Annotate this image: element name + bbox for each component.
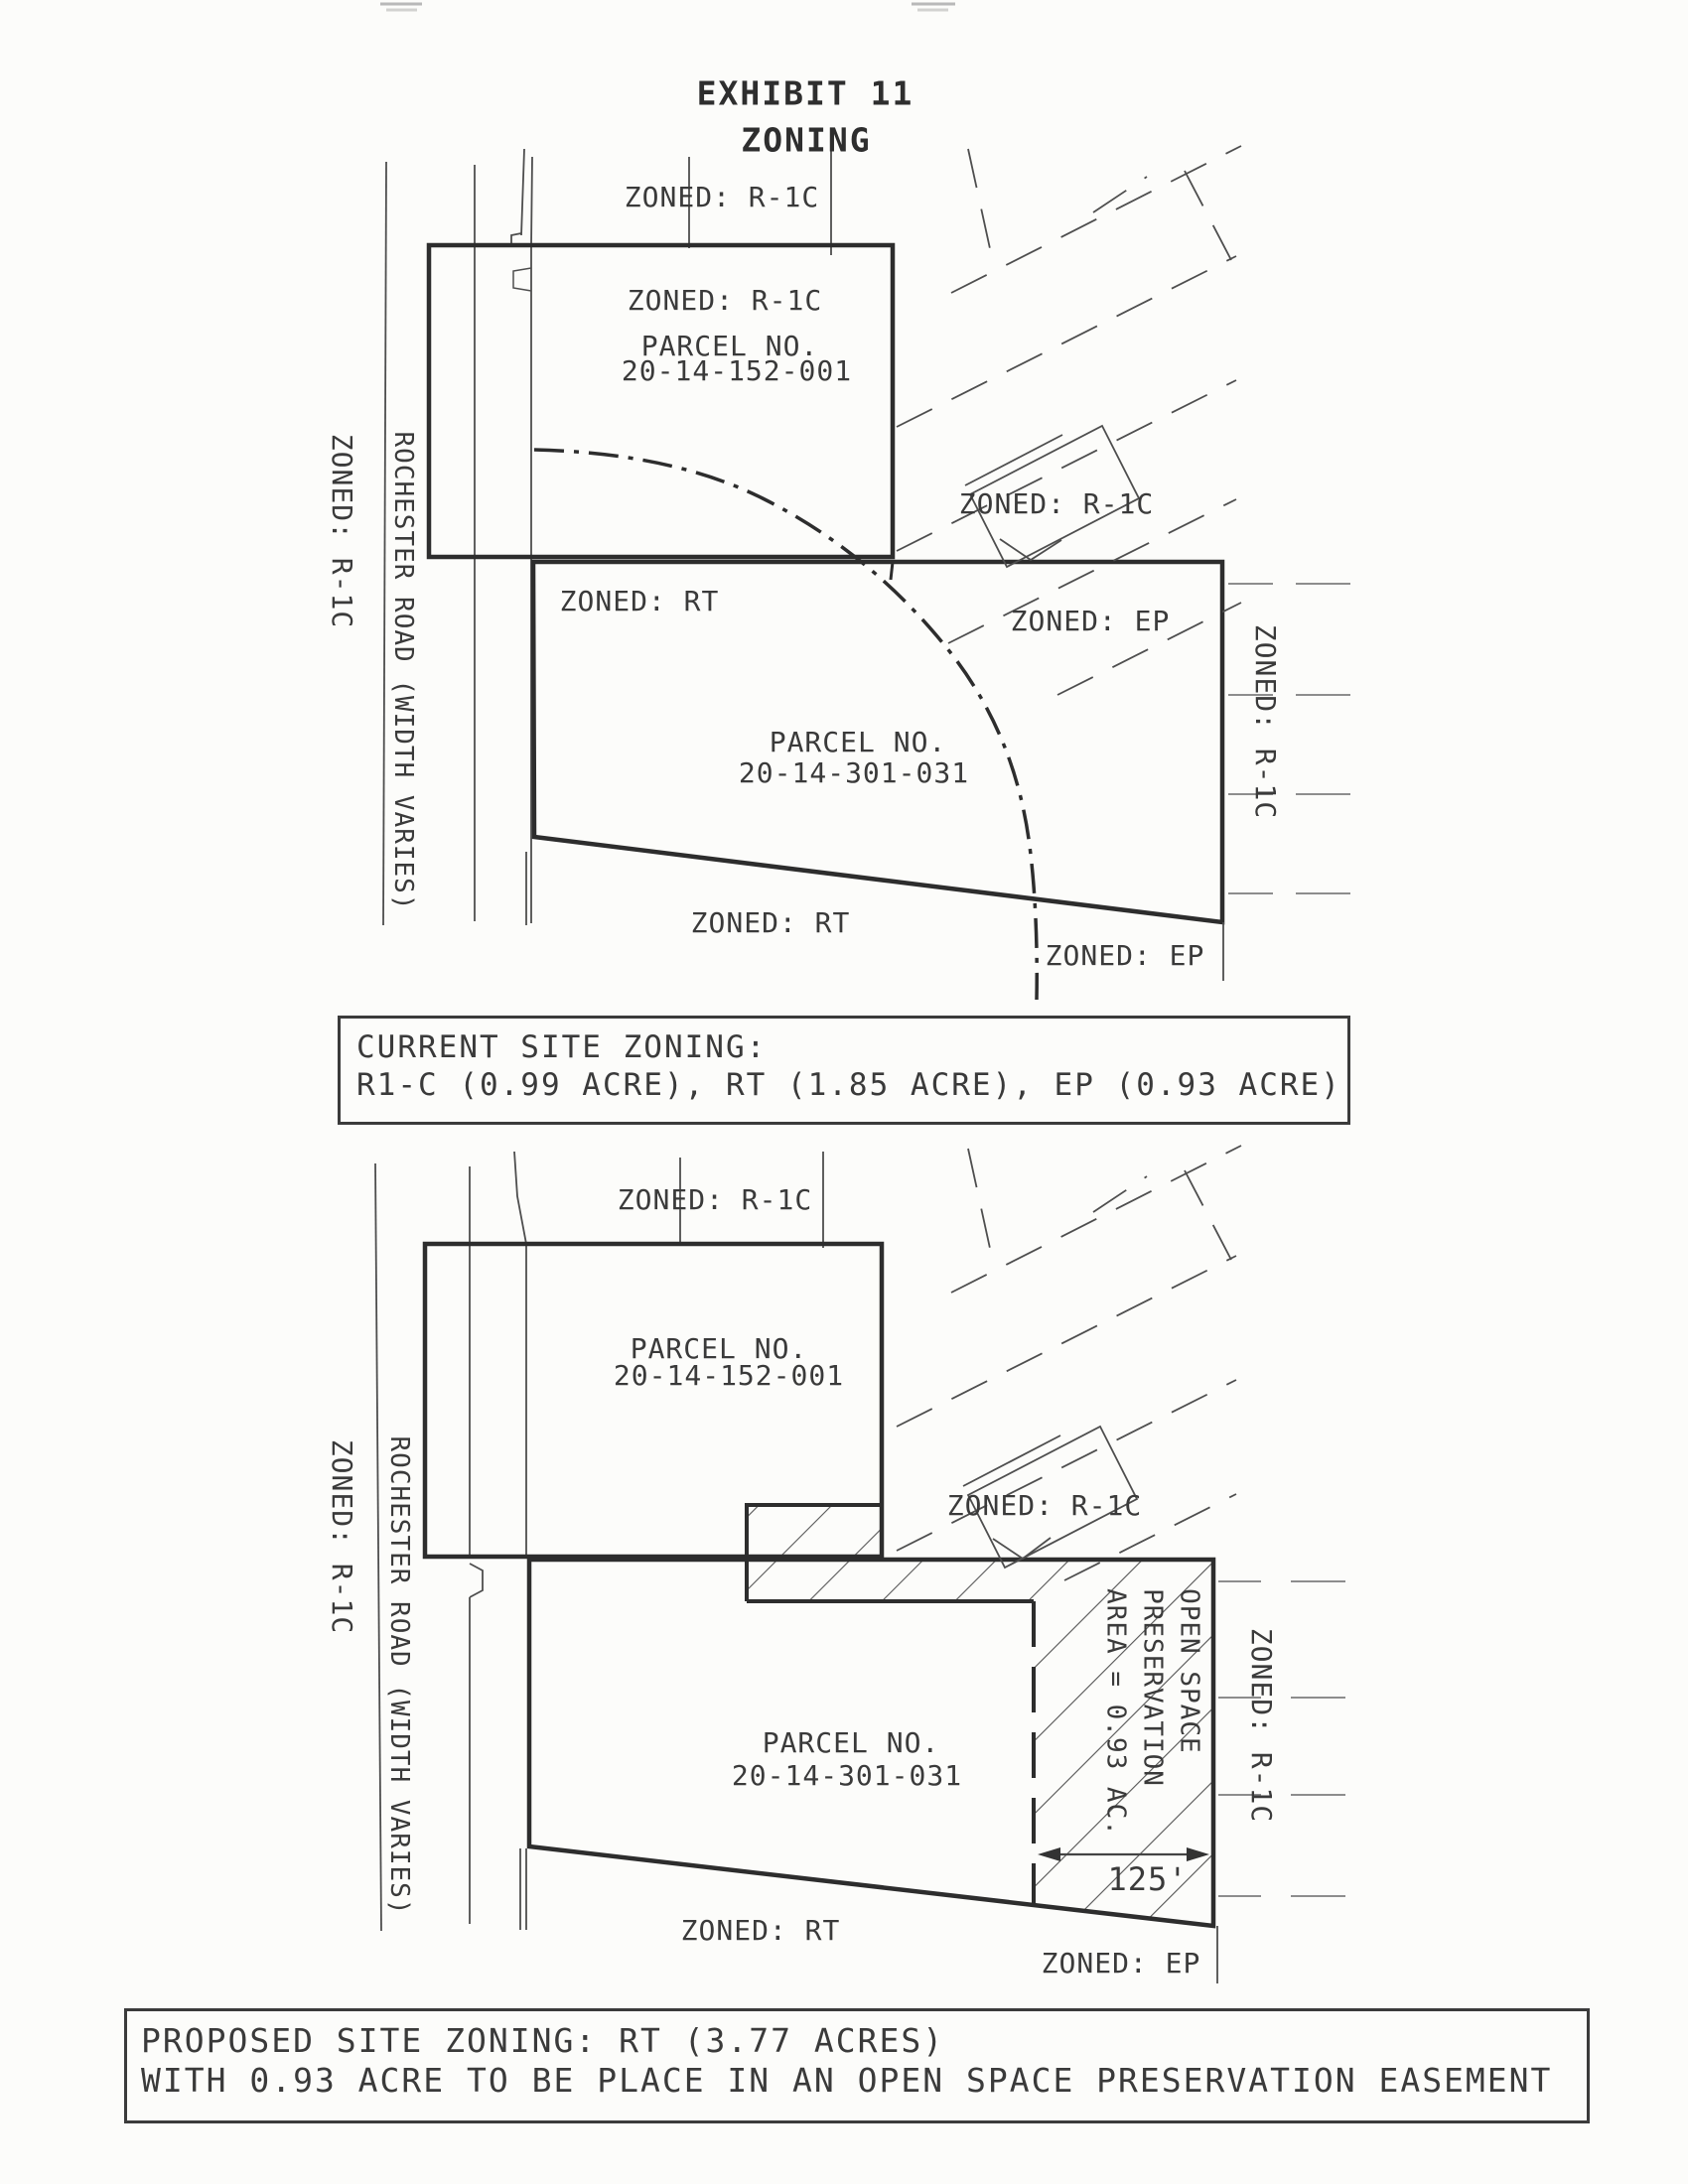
easement-label-line3: AREA = 0.93 AC. <box>1097 1588 1134 1837</box>
proposed-parcel2-no-label: PARCEL NO. <box>763 1729 940 1757</box>
current-zoned-r1c-west: ZONED: R-1C <box>328 434 355 628</box>
page-title-line2: ZONING <box>741 121 871 160</box>
proposed-zoned-r1c-east: ZONED: R-1C <box>1247 1628 1275 1823</box>
proposed-zoned-rt-south: ZONED: RT <box>681 1917 841 1945</box>
current-parcel2-no-label: PARCEL NO. <box>770 729 947 756</box>
proposed-zoned-ep-south: ZONED: EP <box>1042 1950 1201 1978</box>
current-zoning-box-line1: CURRENT SITE ZONING: <box>356 1028 1347 1066</box>
current-zoned-r1c-neighbor: ZONED: R-1C <box>959 490 1154 518</box>
scan-artifacts <box>380 4 955 10</box>
open-space-easement-label: OPEN SPACE PRESERVATION AREA = 0.93 AC. <box>1097 1588 1207 1837</box>
proposed-zoned-r1c-north: ZONED: R-1C <box>618 1186 812 1214</box>
current-parcel2-no: 20-14-301-031 <box>739 759 969 787</box>
current-parcel1-zoning: ZONED: R-1C <box>628 287 822 315</box>
current-zoned-r1c-north: ZONED: R-1C <box>625 184 819 211</box>
zoning-exhibit-page: EXHIBIT 11 ZONING ZONED: R-1C ZONED: R-1… <box>0 0 1688 2184</box>
current-parcel1-no: 20-14-152-001 <box>622 357 852 385</box>
current-plan-linework <box>383 146 1350 1000</box>
current-zoned-ep-interior: ZONED: EP <box>1011 608 1171 635</box>
current-zoning-box: CURRENT SITE ZONING: R1-C (0.99 ACRE), R… <box>338 1016 1350 1125</box>
proposed-rochester-road-label: ROCHESTER ROAD (WIDTH VARIES) <box>386 1436 412 1916</box>
proposed-zoning-box-line1: PROPOSED SITE ZONING: RT (3.77 ACRES) <box>141 2021 1587 2061</box>
proposed-plan-linework <box>375 1146 1345 1983</box>
page-title-line1: EXHIBIT 11 <box>697 74 914 113</box>
current-zoned-r1c-east: ZONED: R-1C <box>1251 624 1279 819</box>
proposed-zoned-r1c-west: ZONED: R-1C <box>328 1439 355 1634</box>
current-rochester-road-label: ROCHESTER ROAD (WIDTH VARIES) <box>390 432 416 911</box>
dimension-125ft-label: 125' <box>1107 1863 1188 1895</box>
proposed-parcel2-no: 20-14-301-031 <box>732 1762 962 1790</box>
current-zoned-ep-south: ZONED: EP <box>1046 942 1205 970</box>
current-zoned-rt-south: ZONED: RT <box>691 909 851 937</box>
proposed-zoning-box-line2: WITH 0.93 ACRE TO BE PLACE IN AN OPEN SP… <box>141 2061 1587 2101</box>
proposed-parcel1-no: 20-14-152-001 <box>614 1362 844 1390</box>
proposed-zoning-box: PROPOSED SITE ZONING: RT (3.77 ACRES) WI… <box>124 2008 1590 2123</box>
current-zoned-rt-interior: ZONED: RT <box>560 588 720 615</box>
current-zoning-box-line2: R1-C (0.99 ACRE), RT (1.85 ACRE), EP (0.… <box>356 1066 1347 1104</box>
proposed-zoned-r1c-neighbor: ZONED: R-1C <box>947 1492 1142 1520</box>
easement-label-line1: OPEN SPACE <box>1171 1588 1207 1837</box>
easement-label-line2: PRESERVATION <box>1134 1588 1171 1837</box>
